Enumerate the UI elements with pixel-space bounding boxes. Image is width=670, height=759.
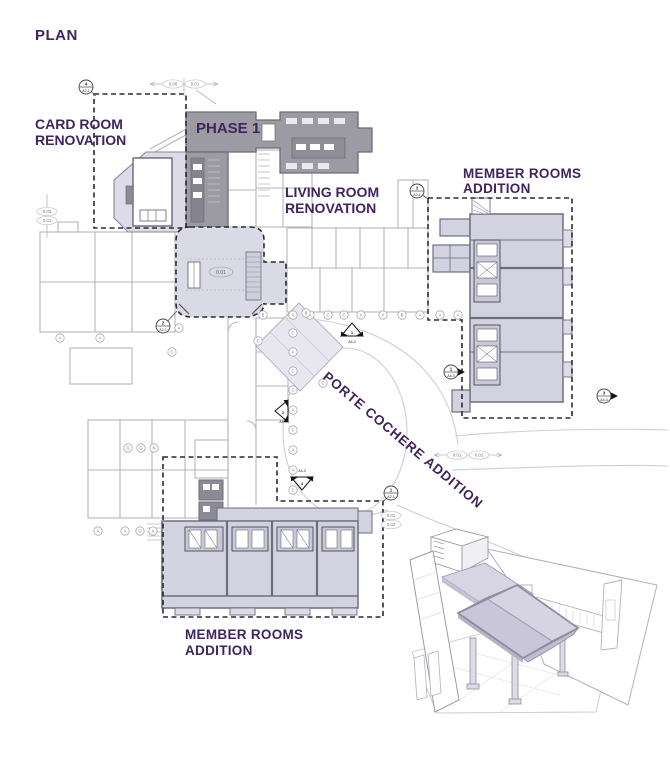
svg-text:A: A (97, 529, 100, 534)
card-room-label-line1: CARD ROOM (35, 116, 123, 132)
svg-text:0.01: 0.01 (453, 453, 462, 458)
phase1-label: PHASE 1 (196, 120, 260, 137)
svg-text:C: C (342, 313, 345, 318)
member-rooms-bottom-label-line2: ADDITION (185, 643, 253, 658)
svg-text:A: A (419, 313, 422, 318)
svg-text:A4-3: A4-3 (279, 420, 287, 424)
svg-text:A2-1: A2-1 (159, 328, 167, 332)
svg-text:A: A (292, 468, 295, 473)
svg-text:C: C (291, 488, 294, 493)
plan-sheet: 0.01 (0, 0, 670, 759)
lobby-room-tag: 0.01 (216, 270, 226, 276)
svg-text:0.01: 0.01 (43, 218, 52, 223)
member-rooms-right-wing (433, 198, 572, 412)
svg-text:B: B (401, 313, 404, 318)
svg-text:0.01: 0.01 (387, 513, 396, 518)
svg-text:N: N (152, 446, 155, 451)
svg-text:B: B (262, 313, 265, 318)
card-room-label-line2: RENOVATION (35, 132, 126, 148)
svg-text:A: A (292, 448, 295, 453)
svg-text:A: A (124, 529, 127, 534)
svg-text:A: A (99, 336, 102, 341)
svg-text:C: C (256, 339, 259, 344)
svg-text:A: A (292, 313, 295, 318)
svg-text:A: A (152, 529, 155, 534)
svg-text:A: A (360, 313, 363, 318)
sheet-title: PLAN (35, 27, 78, 44)
svg-text:A4-3: A4-3 (600, 398, 608, 402)
svg-text:0.01: 0.01 (191, 82, 200, 87)
floor-plan-drawing: 0.01 (0, 0, 670, 759)
svg-text:A4-3: A4-3 (298, 469, 306, 473)
svg-text:A: A (59, 336, 62, 341)
svg-text:0.02: 0.02 (387, 522, 396, 527)
member-rooms-right-label-line2: ADDITION (463, 181, 531, 196)
svg-text:C: C (291, 331, 294, 336)
member-rooms-bottom-label-line1: MEMBER ROOMS (185, 627, 303, 642)
svg-text:A: A (292, 350, 295, 355)
grid-bubbles: BAACCAABAAACACCACAACAAGAGGNACCBCAA (56, 309, 462, 535)
svg-text:G: G (139, 446, 142, 451)
svg-text:A4-3: A4-3 (348, 340, 356, 344)
member-rooms-right-label-line1: MEMBER ROOMS (463, 166, 581, 181)
svg-text:C: C (170, 350, 173, 355)
porte-cochere-axon (410, 529, 657, 713)
svg-text:A: A (178, 326, 181, 331)
lobby-area: 0.01 (176, 227, 286, 317)
svg-text:C: C (291, 369, 294, 374)
svg-text:B: B (305, 311, 308, 316)
svg-text:C: C (291, 388, 294, 393)
member-rooms-bottom-wing (162, 508, 372, 615)
svg-text:G: G (138, 529, 141, 534)
svg-text:A4-3: A4-3 (447, 374, 455, 378)
svg-text:C: C (326, 313, 329, 318)
svg-text:0.03: 0.03 (43, 209, 52, 214)
svg-text:A: A (382, 313, 385, 318)
svg-text:0.00: 0.00 (169, 82, 178, 87)
svg-text:A2-1: A2-1 (387, 495, 395, 499)
living-room-label-line1: LIVING ROOM (285, 184, 379, 200)
svg-text:C: C (291, 428, 294, 433)
svg-text:0.02: 0.02 (475, 453, 484, 458)
card-room-area (114, 152, 186, 232)
svg-text:A: A (439, 313, 442, 318)
living-room-label-line2: RENOVATION (285, 200, 376, 216)
svg-text:A2-1: A2-1 (82, 89, 90, 93)
svg-text:A: A (457, 313, 460, 318)
svg-text:A2-1: A2-1 (413, 193, 421, 197)
svg-text:A: A (292, 408, 295, 413)
svg-text:G: G (126, 446, 129, 451)
